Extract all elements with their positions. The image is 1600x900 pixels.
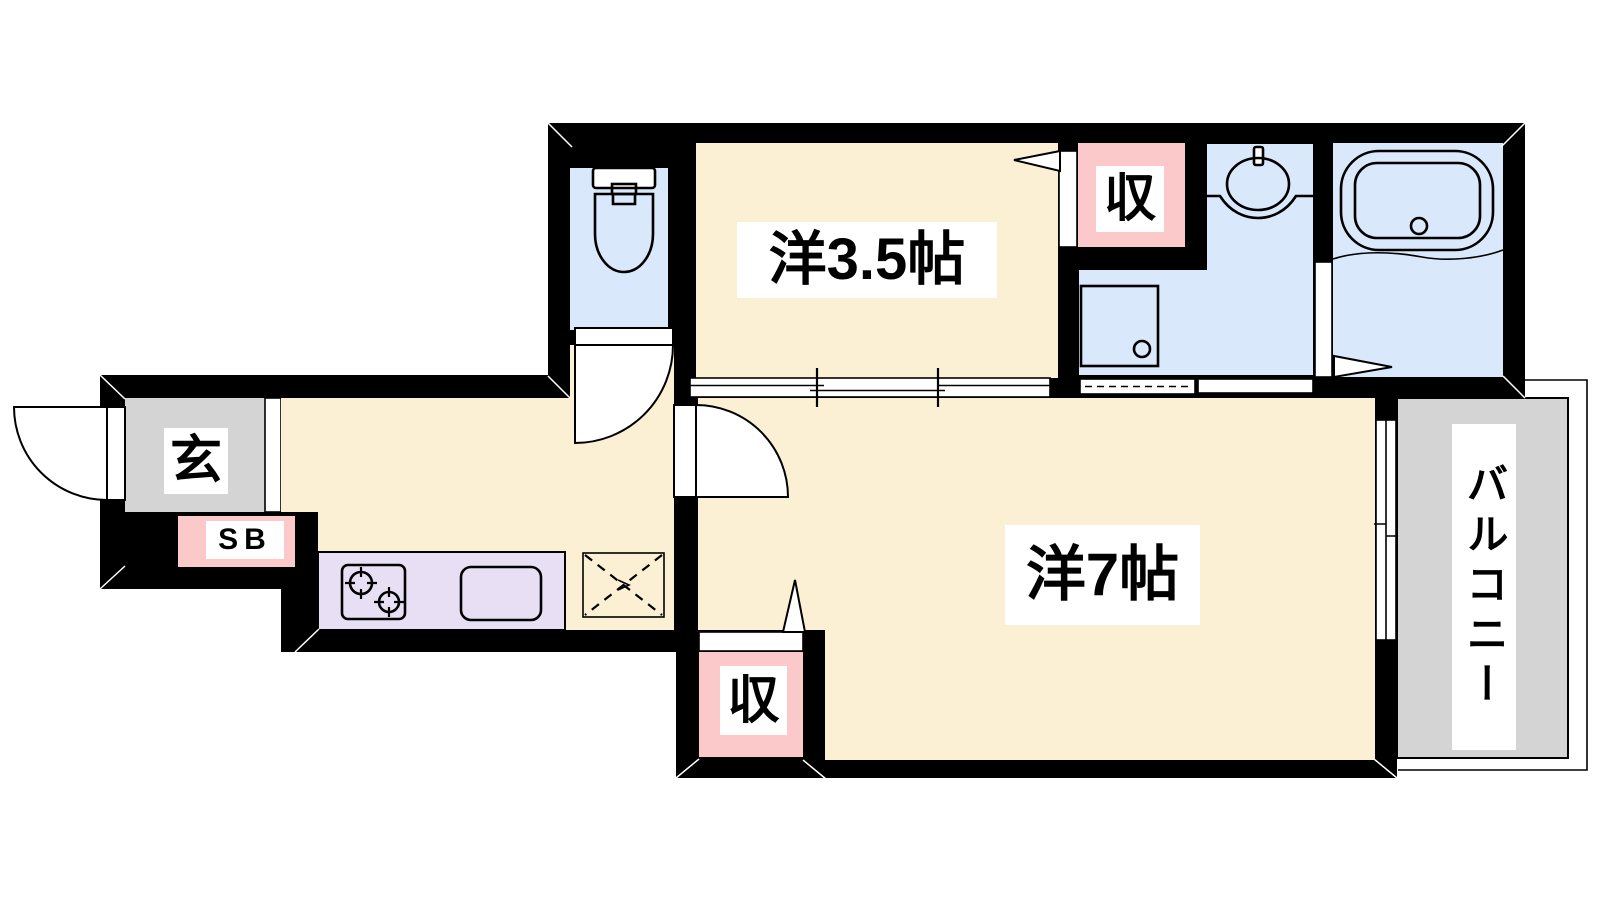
label-closet-upper: 収	[1096, 166, 1164, 232]
bathroom-floor	[1333, 143, 1503, 377]
washroom-opening	[1198, 379, 1313, 393]
washroom-folding-door-icon	[1080, 379, 1195, 394]
toilet-room-floor	[570, 168, 668, 330]
bathroom-door	[1315, 262, 1332, 377]
label-entrance: 玄	[164, 428, 228, 494]
label-room-7: 洋7帖	[1005, 525, 1200, 625]
entrance-door-icon	[14, 407, 125, 500]
floorplan: 洋3.5帖 洋7帖 収 収 玄 SB バルコニー	[0, 0, 1600, 900]
closet-lower-door	[699, 632, 803, 651]
label-shoe-box: SB	[206, 521, 284, 559]
label-room-3-5: 洋3.5帖	[737, 222, 997, 298]
label-closet-lower: 収	[720, 666, 787, 735]
balcony-window	[1374, 420, 1398, 640]
label-balcony: バルコニー	[1452, 424, 1516, 750]
entrance-hall-partition	[265, 398, 281, 512]
closet-upper-door	[1059, 151, 1077, 247]
floorplan-drawing	[0, 0, 1600, 900]
